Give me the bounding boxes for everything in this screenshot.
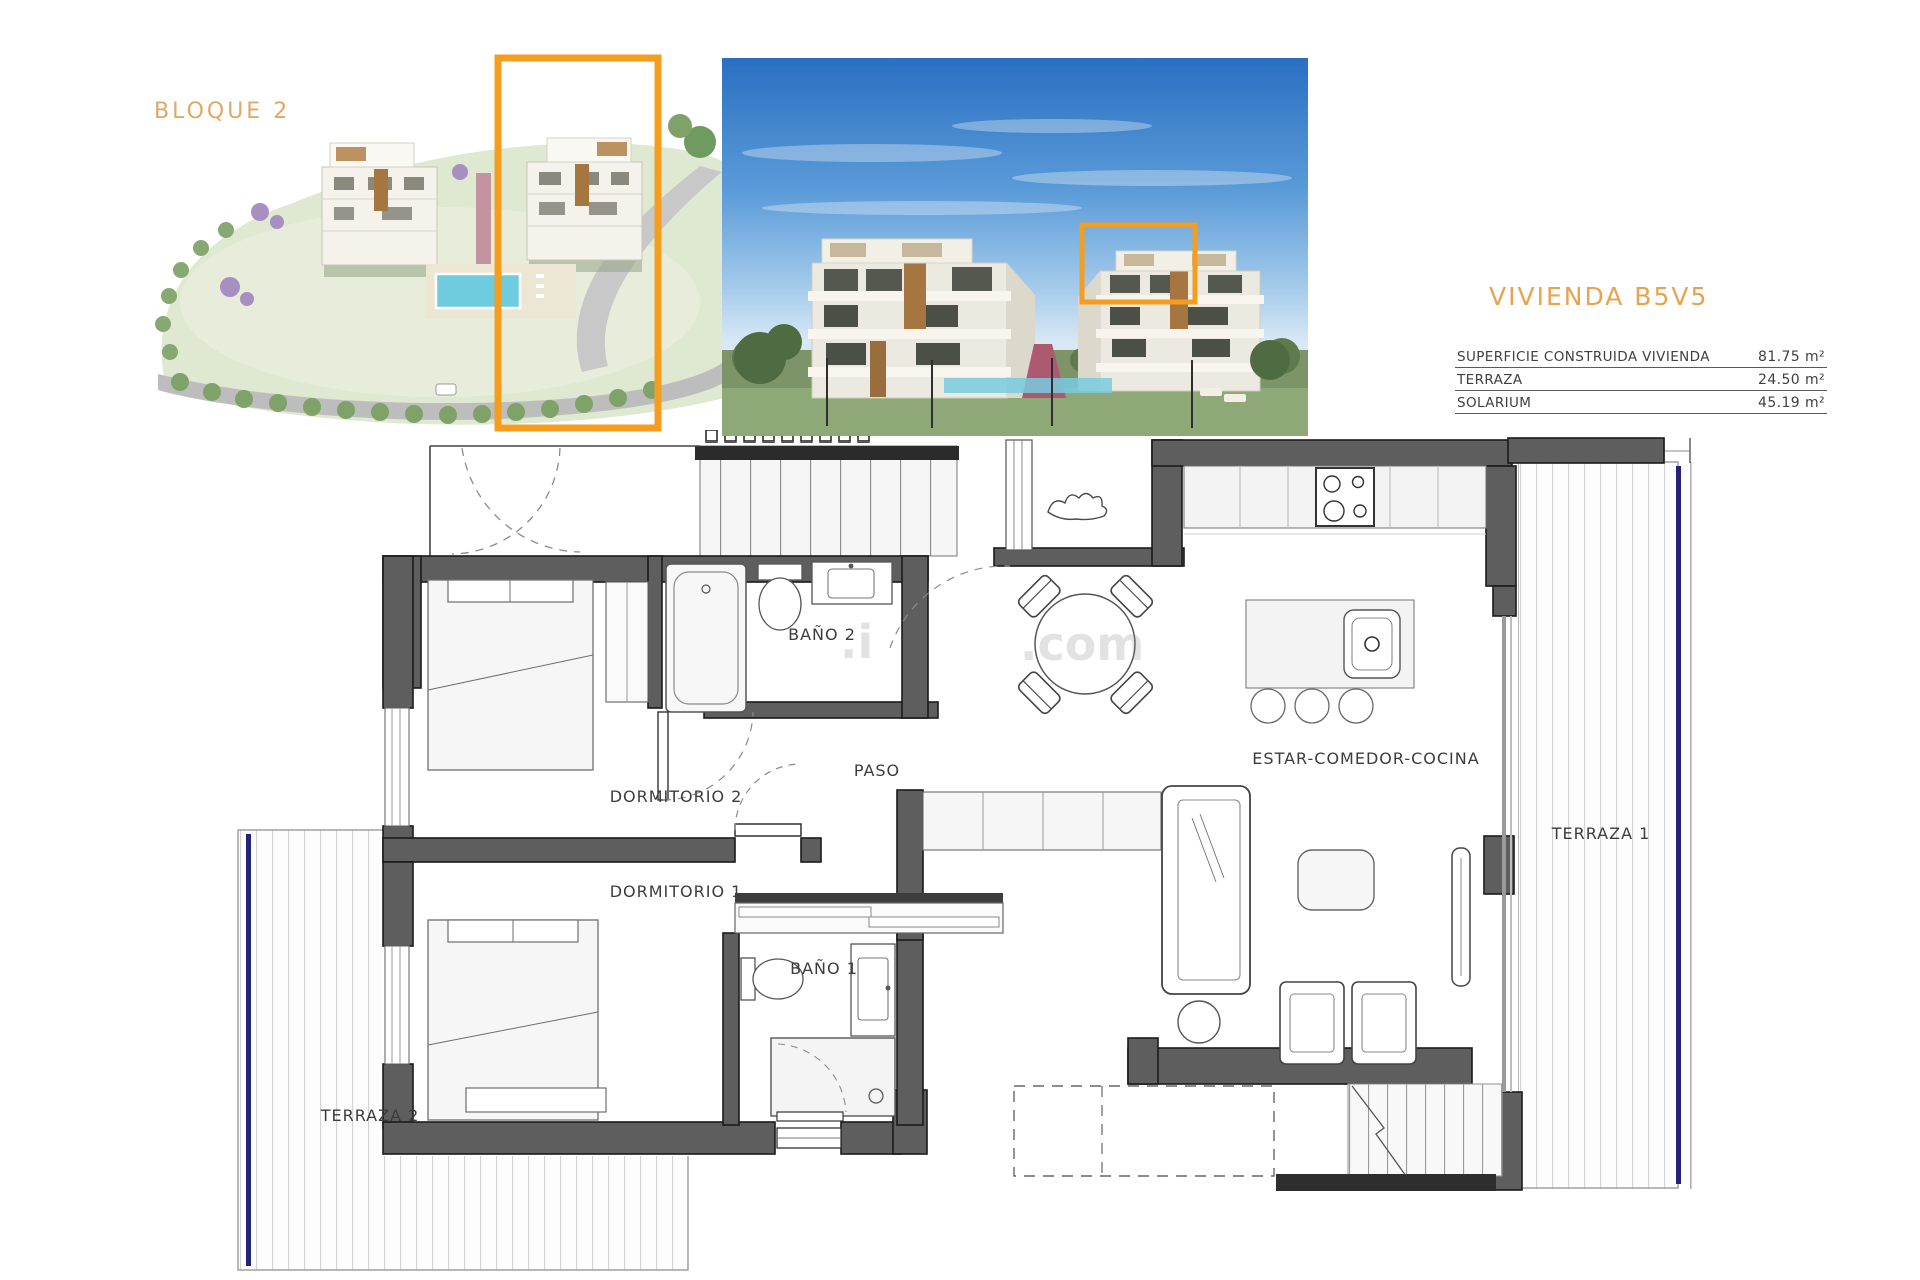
aerial-render-image: BLOQUE 2 [140,52,740,442]
bed1-symbol [428,920,606,1120]
photo-pool [944,378,1112,393]
unit-info-panel: VIVIENDA B5V5 SUPERFICIE CONSTRUIDA VIVI… [1455,282,1827,414]
stool [1339,689,1373,723]
toilet2-symbol [758,564,802,630]
area-value: 45.19 m² [1758,395,1825,411]
stool [1251,689,1285,723]
photo-building-left [808,239,1035,398]
area-row-terraza: TERRAZA 24.50 m² [1455,368,1827,391]
area-table: SUPERFICIE CONSTRUIDA VIVIENDA 81.75 m² … [1455,345,1827,414]
terrace1-railing [1676,466,1681,1184]
sofa-symbol [1162,786,1250,994]
window-dormitorio2 [385,708,409,826]
bed2-symbol [428,580,593,770]
area-value: 24.50 m² [1758,372,1825,388]
label-terraza2: TERRAZA 2 [320,1106,420,1125]
wardrobe2-symbol [606,582,648,702]
unit-title: VIVIENDA B5V5 [1455,282,1827,311]
hob-symbol [1316,468,1374,526]
plan-sheet: .i .com BAÑO 2 DORMITORIO 2 PASO DORMITO… [0,0,1920,1280]
shower-symbol [771,1038,895,1121]
aerial-car [436,384,456,395]
terraza1-deck [1518,438,1692,1189]
terrace2-railing [246,834,251,1266]
bloque-label: BLOQUE 2 [154,99,290,124]
bathtub-symbol [666,564,746,712]
tv-bench-symbol [1452,848,1470,986]
side-table-symbol [1178,1001,1220,1043]
sideboard-symbol [923,792,1161,850]
elevation-render-image [722,58,1308,436]
coffee-table-symbol [1298,850,1374,910]
armchair-symbol [1280,982,1344,1064]
label-bano2: BAÑO 2 [788,625,856,644]
area-label: SOLARIUM [1457,395,1531,411]
window-dormitorio1 [385,946,409,1064]
svg-text:.com: .com [1020,617,1144,671]
area-row-vivienda: SUPERFICIE CONSTRUIDA VIVIENDA 81.75 m² [1455,345,1827,368]
vanity1-symbol [851,944,895,1036]
terrace2-door [777,1128,841,1148]
stool [1295,689,1329,723]
label-dormitorio1: DORMITORIO 1 [610,882,743,901]
sink2-symbol [812,562,892,604]
area-label: SUPERFICIE CONSTRUIDA VIVIENDA [1457,349,1710,365]
label-dormitorio2: DORMITORIO 2 [610,787,743,806]
armchair-symbol [1352,982,1416,1064]
area-label: TERRAZA [1457,372,1523,388]
label-terraza1: TERRAZA 1 [1551,824,1651,843]
stair-handrail [695,446,959,460]
photo-building-right [1078,251,1264,391]
area-value: 81.75 m² [1758,349,1825,365]
closet-symbol [735,893,1003,933]
label-bano1: BAÑO 1 [790,959,858,978]
label-paso: PASO [854,761,900,780]
area-row-solarium: SOLARIUM 45.19 m² [1455,391,1827,414]
label-estar: ESTAR-COMEDOR-COCINA [1252,749,1479,768]
